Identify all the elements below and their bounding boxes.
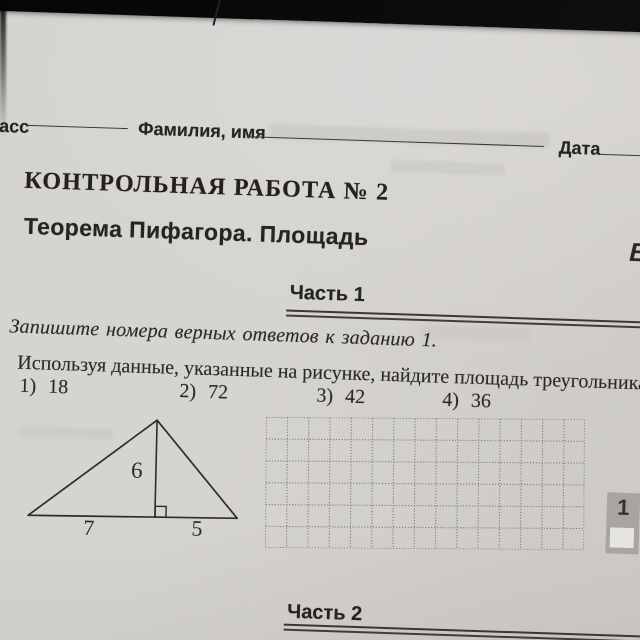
task-number-badge: 1 [605, 492, 640, 554]
class-underline [27, 125, 128, 129]
answer-box [610, 527, 635, 548]
task-instruction: Запишите номера верных ответов к заданию… [9, 315, 437, 352]
option-number: 2) [179, 380, 196, 403]
part2-rule [284, 624, 640, 640]
option-value: 18 [48, 376, 69, 399]
answer-option-4: 4)36 [442, 390, 491, 412]
answer-option-2: 2)72 [179, 381, 228, 403]
answer-option-1: 1)18 [19, 376, 68, 398]
work-title: КОНТРОЛЬНАЯ РАБОТА № 2 [24, 169, 390, 205]
altitude-label: 6 [131, 457, 143, 482]
part2-heading: Часть 2 [287, 602, 363, 624]
worksheet-paper: асс Фамилия, имя Дата КОНТРОЛЬНАЯ РАБОТА… [0, 10, 640, 640]
badge-number: 1 [606, 496, 640, 519]
option-number: 1) [19, 375, 36, 398]
option-value: 72 [208, 381, 229, 404]
paper-edge-shadow [0, 8, 6, 138]
base-right-label: 5 [191, 516, 203, 541]
variant-letter: В [629, 239, 640, 266]
ink-bleed-artifact [390, 160, 505, 176]
option-value: 36 [471, 390, 492, 413]
option-number: 3) [316, 385, 333, 408]
name-label: Фамилия, имя [138, 120, 266, 142]
base-left-label: 7 [83, 515, 95, 540]
photo-background: асс Фамилия, имя Дата КОНТРОЛЬНАЯ РАБОТА… [0, 0, 640, 640]
altitude-line [154, 420, 158, 517]
right-angle-marker [155, 506, 166, 517]
part1-heading: Часть 1 [289, 283, 365, 305]
work-subtitle: Теорема Пифагора. Площадь [23, 215, 368, 249]
date-label: Дата [558, 138, 600, 157]
option-number: 4) [442, 389, 459, 412]
option-value: 42 [345, 386, 366, 409]
triangle-figure: 6 7 5 [12, 406, 256, 549]
date-underline [601, 154, 640, 159]
squared-grid-svg [265, 417, 585, 550]
answer-option-3: 3)42 [316, 386, 365, 408]
